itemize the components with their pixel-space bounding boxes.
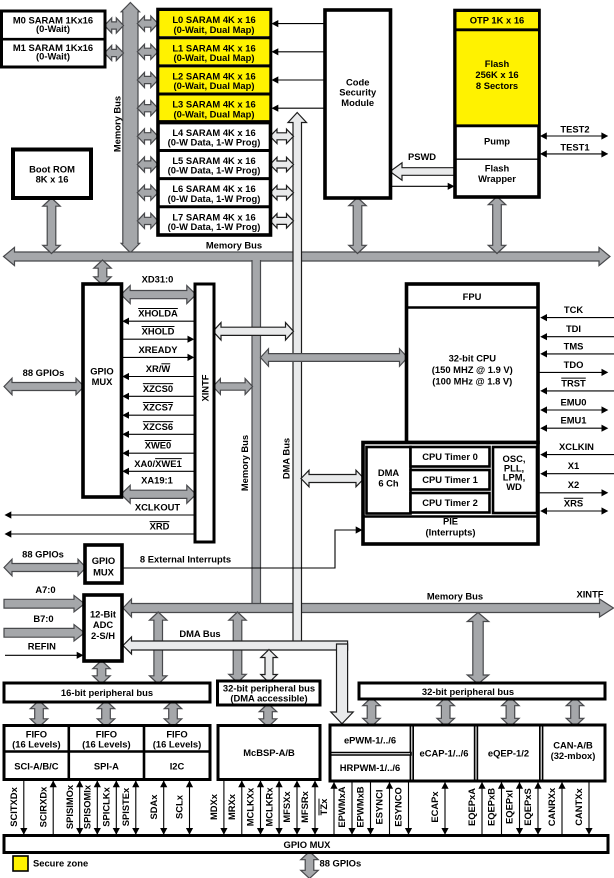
svg-text:256K x 16: 256K x 16 [475,69,518,80]
svg-text:DMA Bus: DMA Bus [179,628,220,639]
svg-text:(0-Wait, Dual Map): (0-Wait, Dual Map) [174,80,255,91]
svg-text:A7:0: A7:0 [35,584,55,595]
svg-text:CAN-A/B: CAN-A/B [553,739,593,750]
svg-text:XINTF: XINTF [576,589,603,600]
svg-text:Module: Module [341,97,374,108]
svg-text:MFSRx: MFSRx [299,790,310,823]
svg-text:McBSP-A/B: McBSP-A/B [243,747,295,758]
svg-text:Memory Bus: Memory Bus [112,96,123,152]
svg-text:XZCS7: XZCS7 [143,402,173,413]
svg-text:TEST2: TEST2 [560,124,589,135]
svg-text:Pump: Pump [484,136,510,147]
svg-text:SCIRXDx: SCIRXDx [37,786,48,827]
svg-text:SPISTEx: SPISTEx [120,787,131,826]
svg-text:CANTXx: CANTXx [573,787,584,825]
svg-text:X2: X2 [568,479,579,490]
svg-text:WD: WD [506,481,522,492]
svg-text:TZx: TZx [318,798,329,815]
svg-text:CPU Timer 0: CPU Timer 0 [422,451,478,462]
svg-text:(0-Wait, Dual Map): (0-Wait, Dual Map) [174,108,255,119]
svg-text:Secure zone: Secure zone [33,858,88,869]
svg-text:GPIO: GPIO [92,555,115,566]
svg-text:XHOLDA: XHOLDA [138,308,178,319]
svg-text:(0-Wait): (0-Wait) [36,50,70,61]
svg-text:XHOLD: XHOLD [142,326,175,337]
svg-text:(100 MHz @ 1.8 V): (100 MHz @ 1.8 V) [432,376,512,387]
svg-text:(0-W Data, 1-W Prog): (0-W Data, 1-W Prog) [168,221,261,232]
svg-text:8 External Interrupts: 8 External Interrupts [140,554,231,565]
svg-text:2-S/H: 2-S/H [91,630,115,641]
svg-text:32-bit peripheral bus: 32-bit peripheral bus [422,686,514,697]
svg-text:CANRXx: CANRXx [546,787,557,826]
svg-text:XCLKOUT: XCLKOUT [135,502,181,513]
svg-text:(16 Levels): (16 Levels) [153,739,201,750]
svg-text:SCLx: SCLx [174,794,185,819]
svg-text:I2C: I2C [170,760,185,771]
svg-text:MFSXx: MFSXx [281,791,292,823]
svg-text:TEST1: TEST1 [560,142,589,153]
svg-text:DMA: DMA [378,467,400,478]
svg-text:6 Ch: 6 Ch [378,477,399,488]
svg-text:16-bit peripheral bus: 16-bit peripheral bus [61,687,153,698]
svg-text:(16 Levels): (16 Levels) [12,739,60,750]
svg-text:8K x 16: 8K x 16 [36,173,69,184]
svg-text:MUX: MUX [92,376,114,387]
svg-text:EQEPxI: EQEPxI [504,790,515,824]
svg-text:EMU1: EMU1 [560,415,586,426]
svg-text:EQEPxA: EQEPxA [466,788,477,826]
svg-text:(32-mbox): (32-mbox) [551,750,596,761]
svg-text:(0-Wait, Dual Map): (0-Wait, Dual Map) [174,24,255,35]
svg-text:88 GPIOs: 88 GPIOs [22,549,64,560]
svg-text:MRXx: MRXx [226,793,237,820]
svg-text:MUX: MUX [93,566,115,577]
svg-text:ePWM-1/../6: ePWM-1/../6 [344,734,396,745]
svg-text:CPU Timer 1: CPU Timer 1 [422,474,478,485]
svg-text:SDAx: SDAx [148,794,159,820]
svg-text:XRS: XRS [564,497,583,508]
svg-text:GPIO: GPIO [90,366,113,377]
svg-text:ESYNCO: ESYNCO [393,787,404,827]
svg-text:eQEP-1/2: eQEP-1/2 [488,748,529,759]
svg-text:XZCS0: XZCS0 [143,383,173,394]
svg-text:DMA Bus: DMA Bus [281,438,292,479]
svg-text:(0-W Data, 1-W Prog): (0-W Data, 1-W Prog) [168,137,261,148]
svg-text:HRPWM-1/../6: HRPWM-1/../6 [340,762,400,773]
svg-text:(DMA accessible): (DMA accessible) [230,693,307,704]
svg-text:EQEPxB: EQEPxB [486,788,497,826]
svg-text:TCK: TCK [564,304,583,315]
svg-text:ADC: ADC [93,619,114,630]
svg-text:PSWD: PSWD [408,151,436,162]
svg-text:Memory Bus: Memory Bus [427,591,483,602]
svg-text:SPISIMOx: SPISIMOx [64,784,75,829]
svg-text:CPU Timer 2: CPU Timer 2 [422,497,478,508]
svg-text:SCI-A/B/C: SCI-A/B/C [14,760,59,771]
svg-text:(0-W Data, 1-W Prog): (0-W Data, 1-W Prog) [168,193,261,204]
svg-text:ECAPx: ECAPx [429,791,440,823]
svg-text:eCAP-1/../6: eCAP-1/../6 [420,748,469,759]
svg-text:88 GPIOs: 88 GPIOs [320,858,362,869]
svg-text:(0-W Data, 1-W Prog): (0-W Data, 1-W Prog) [168,165,261,176]
svg-text:REFIN: REFIN [28,641,56,652]
svg-text:XA19:1: XA19:1 [141,475,173,486]
svg-text:XWE0: XWE0 [145,440,172,451]
svg-text:EPWMxA: EPWMxA [336,786,347,827]
svg-text:88 GPIOs: 88 GPIOs [23,367,65,378]
svg-text:MCLKXx: MCLKXx [245,787,256,826]
svg-text:TMS: TMS [564,340,584,351]
svg-text:XINTF: XINTF [200,374,211,401]
svg-text:Memory Bus: Memory Bus [239,435,250,491]
svg-text:12-Bit: 12-Bit [90,609,116,620]
svg-text:Flash: Flash [485,58,510,69]
svg-text:XA0/XWE1: XA0/XWE1 [134,458,181,469]
svg-text:EMU0: EMU0 [560,396,586,407]
svg-text:(16 Levels): (16 Levels) [82,739,130,750]
svg-text:8 Sectors: 8 Sectors [476,80,518,91]
svg-text:EPWMxB: EPWMxB [355,786,366,827]
svg-text:TDI: TDI [566,323,581,334]
svg-text:MCLKRx: MCLKRx [263,787,274,827]
svg-text:PIE: PIE [443,516,458,527]
svg-text:SPI-A: SPI-A [94,760,119,771]
svg-text:XZCS6: XZCS6 [143,421,173,432]
svg-text:(0-Wait): (0-Wait) [36,23,70,34]
svg-text:OTP 1K x 16: OTP 1K x 16 [470,15,525,26]
svg-text:X1: X1 [568,460,579,471]
svg-text:EQEPxS: EQEPxS [522,788,533,826]
svg-text:ESYNCI: ESYNCI [374,790,385,825]
svg-text:SCITXDx: SCITXDx [8,786,19,826]
svg-text:MDXx: MDXx [208,793,219,820]
svg-text:Wrapper: Wrapper [478,173,516,184]
svg-text:32-bit CPU: 32-bit CPU [449,353,497,364]
svg-text:Memory Bus: Memory Bus [206,240,262,251]
svg-text:SPICLKx: SPICLKx [101,786,112,826]
svg-text:XR/W: XR/W [146,363,171,374]
svg-text:XRD: XRD [150,521,170,532]
svg-text:TDO: TDO [564,359,584,370]
svg-text:TRST: TRST [561,377,586,388]
svg-text:B7:0: B7:0 [33,613,53,624]
svg-text:SPISOMIx: SPISOMIx [82,784,93,829]
svg-text:(Interrupts): (Interrupts) [426,526,476,537]
svg-text:FPU: FPU [463,291,482,302]
svg-text:Flash: Flash [485,163,510,174]
svg-text:XREADY: XREADY [138,344,178,355]
svg-text:XD31:0: XD31:0 [142,274,174,285]
svg-text:GPIO MUX: GPIO MUX [284,839,332,850]
svg-text:XCLKIN: XCLKIN [559,441,594,452]
svg-text:(150 MHZ @ 1.9 V): (150 MHZ @ 1.9 V) [432,364,513,375]
svg-text:(0-Wait, Dual Map): (0-Wait, Dual Map) [174,52,255,63]
